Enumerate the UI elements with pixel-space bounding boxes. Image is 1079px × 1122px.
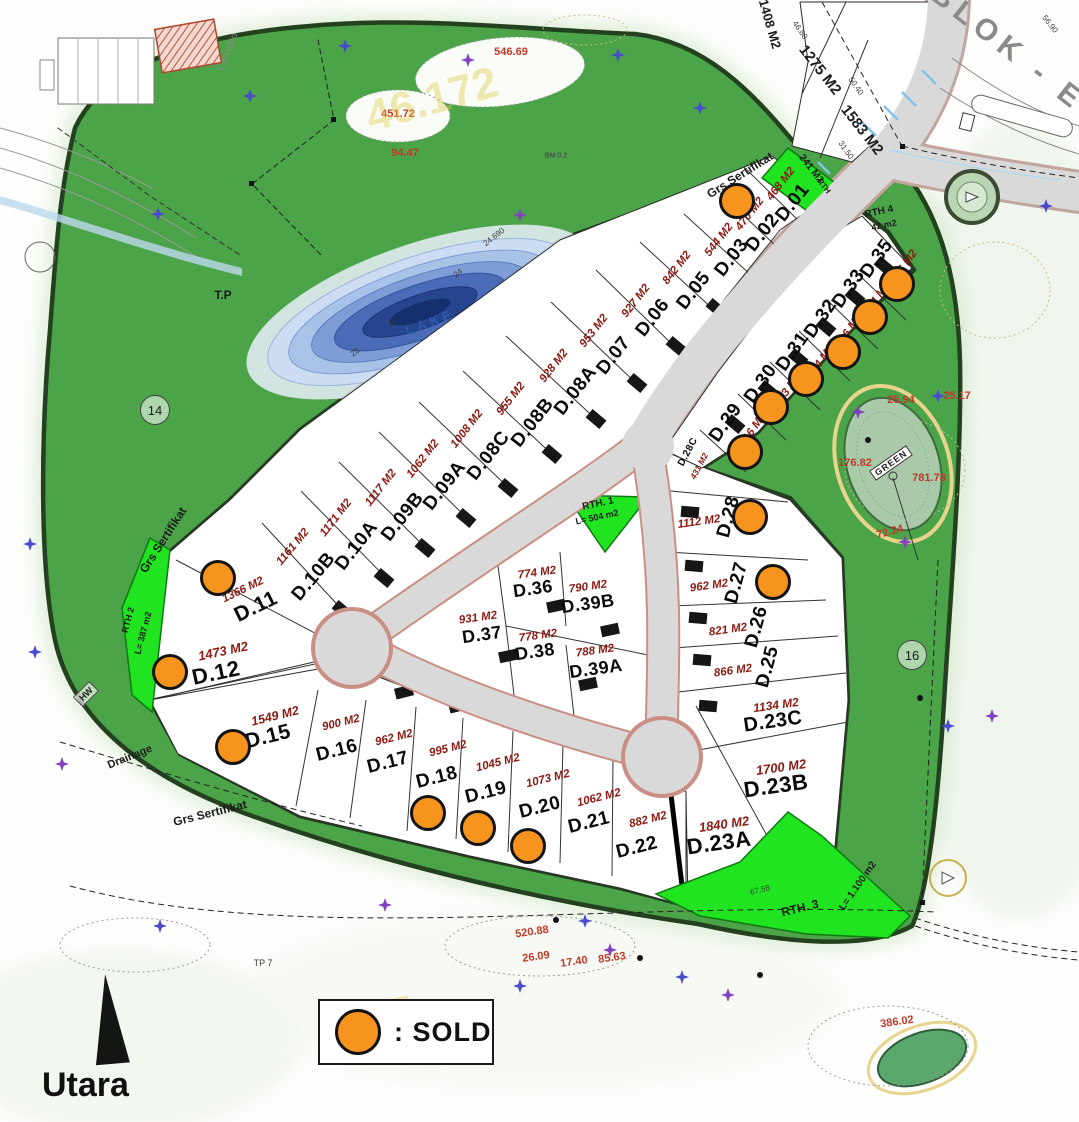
lot-name-D.21: D.21 <box>566 807 612 839</box>
lot-area-D.17: 962 M2 <box>374 728 414 749</box>
lot-name-D.08C: D.08C <box>463 427 515 485</box>
site-plan-map: 468 M2D.01470 M2D.02544 M2D.03842 M2D.05… <box>0 0 1079 1122</box>
lot-area-D.20: 1073 M2 <box>525 768 571 790</box>
lot-name-D.25: D.25 <box>752 644 784 690</box>
map-label-38: 781.78 <box>912 472 946 484</box>
lot-area-D.07: 953 M2 <box>577 312 610 350</box>
sold-marker-D.15 <box>215 729 251 765</box>
map-label-31: GREEN <box>869 445 913 481</box>
map-label-13: Grs Sertifikat <box>137 505 190 576</box>
lot-name-D.17: D.17 <box>365 747 411 779</box>
map-label-21: 24 <box>452 267 465 280</box>
sold-marker-D.28 <box>732 499 768 535</box>
lot-name-D.22: D.22 <box>614 832 660 864</box>
sold-legend-icon <box>335 1009 381 1055</box>
lot-name-D.20: D.20 <box>517 792 563 824</box>
map-label-9: 31.50 <box>837 139 856 161</box>
sold-marker-D.35 <box>879 266 915 302</box>
map-label-45: TP 7 <box>254 958 273 968</box>
lot-name-D.12: D.12 <box>190 655 243 691</box>
map-label-19: 22 <box>349 346 362 359</box>
lot-area-D.25: 866 M2 <box>713 662 753 679</box>
lot-name-D.09B: D.09B <box>377 488 429 546</box>
map-label-43: 85.63 <box>598 950 627 966</box>
lot-area-D.16: 900 M2 <box>321 713 361 734</box>
map-label-44: 386.02 <box>880 1014 915 1031</box>
sold-marker-D.33 <box>852 299 888 335</box>
map-label-41: 26.09 <box>522 949 551 965</box>
legend-box: : SOLD <box>318 999 494 1065</box>
lot-area-D.08C: 1008 M2 <box>448 408 485 451</box>
map-label-14: Grs Sertifikat <box>172 797 249 829</box>
map-label-7: 46.80 <box>791 19 810 41</box>
lot-area-D.10B: 1161 M2 <box>274 526 311 567</box>
lot-area-D.10A: 1171 M2 <box>318 497 354 539</box>
map-label-10: 56.90 <box>1040 13 1059 34</box>
map-label-11: 67.58 <box>749 883 771 897</box>
lot-name-D.38: D.38 <box>514 639 557 665</box>
sold-marker-D.29 <box>727 434 763 470</box>
lot-area-D.22: 882 M2 <box>628 810 668 831</box>
map-label-29: Drainage <box>106 743 154 772</box>
map-label-47: BM 0.2 <box>545 153 567 160</box>
map-label-40: 520.88 <box>515 924 550 941</box>
map-label-24: L= 504 m2 <box>575 508 620 527</box>
sold-marker-D.19 <box>460 810 496 846</box>
lot-area-D.26: 821 M2 <box>708 621 748 638</box>
labels-overlay: 468 M2D.01470 M2D.02544 M2D.03842 M2D.05… <box>0 0 1079 1122</box>
map-label-46: Carvalho <box>215 31 240 72</box>
map-label-34: 94.47 <box>391 147 419 159</box>
lot-area-D.19: 1045 M2 <box>475 752 521 774</box>
lot-area-D.21: 1062 M2 <box>576 787 622 809</box>
map-label-26: L= 387 m2 <box>133 611 154 656</box>
map-label-18: LAKE <box>403 306 456 338</box>
map-label-15: T.P <box>214 288 231 302</box>
map-label-25: RTH 2 <box>120 606 136 634</box>
lot-area-D.08B: 955 M2 <box>494 380 527 418</box>
lot-name-D.26: D.26 <box>741 604 773 650</box>
lot-name-D.23A: D.23A <box>685 826 753 861</box>
sold-marker-D.31 <box>788 361 824 397</box>
map-label-16: 14 <box>140 395 170 425</box>
map-label-48: 46.172 <box>360 57 503 142</box>
lot-area-D.08A: 928 M2 <box>537 347 570 385</box>
lot-name-D.39B: D.39B <box>560 590 616 618</box>
sold-marker-D.20 <box>510 828 546 864</box>
map-label-36: 25.17 <box>943 390 971 402</box>
lot-name-D.23B: D.23B <box>742 769 810 804</box>
lot-name-D.10B: D.10B <box>287 548 340 605</box>
map-label-35: 25.94 <box>887 394 915 406</box>
lot-name-D.18: D.18 <box>414 762 460 794</box>
sold-marker-D.12 <box>152 654 188 690</box>
sold-legend-label: : SOLD <box>394 1017 492 1048</box>
lot-area-D.18: 995 M2 <box>428 739 468 760</box>
map-label-22: 24.690 <box>482 226 507 248</box>
map-label-1: 1275 M2 <box>795 42 844 98</box>
lot-name-D.23C: D.23C <box>742 706 804 737</box>
lot-area-D.09A: 1062 M2 <box>404 438 441 481</box>
sold-marker-D.11 <box>200 560 236 596</box>
map-label-39: 72.24 <box>875 523 905 542</box>
lot-name-D.10A: D.10A <box>331 517 383 575</box>
map-label-17: 16 <box>897 640 927 670</box>
lot-name-D.36: D.36 <box>512 576 555 602</box>
map-label-32: 546.69 <box>494 46 528 58</box>
sold-marker-D.18 <box>410 795 446 831</box>
lot-name-D.19: D.19 <box>463 777 509 809</box>
map-label-4: RTH <box>815 177 832 196</box>
sold-marker-D.27 <box>755 564 791 600</box>
map-label-28: L= 1.100 m2 <box>837 860 879 913</box>
lot-name-D.27: D.27 <box>721 560 753 606</box>
lot-name-D.16: D.16 <box>314 735 360 767</box>
lot-name-D.37: D.37 <box>461 622 504 648</box>
map-label-42: 17.40 <box>560 954 589 970</box>
map-label-30: HW <box>73 681 99 707</box>
lot-name-D.09A: D.09A <box>419 457 471 515</box>
map-label-0: 1408 M2 <box>756 0 784 50</box>
sold-marker-D.32 <box>825 334 861 370</box>
lot-area-D.09B: 1117 M2 <box>363 467 399 508</box>
sold-marker-D.30 <box>753 389 789 425</box>
map-label-20: 23 <box>386 316 399 329</box>
map-label-6: 42 m2 <box>870 217 897 232</box>
map-label-27: RTH. 3 <box>780 897 820 920</box>
map-label-8: 50.40 <box>847 75 866 97</box>
map-label-37: 176.82 <box>838 457 872 469</box>
compass-label: Utara <box>42 1066 129 1105</box>
